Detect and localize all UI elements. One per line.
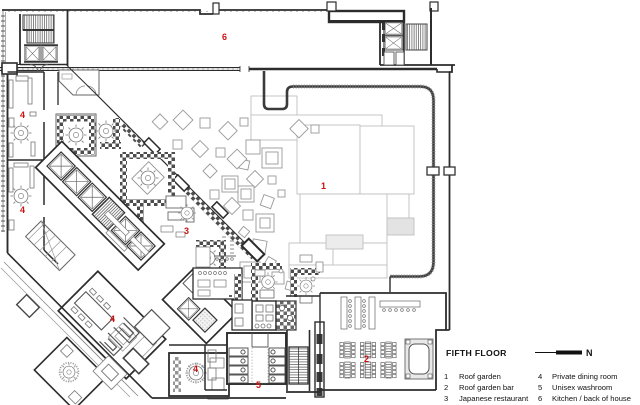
svg-text:1: 1: [321, 181, 326, 191]
svg-text:2: 2: [364, 354, 369, 364]
svg-text:6: 6: [538, 394, 542, 403]
svg-text:Private dining room: Private dining room: [552, 372, 617, 381]
svg-text:N: N: [586, 348, 593, 358]
svg-text:Japanese restaurant: Japanese restaurant: [459, 394, 529, 403]
svg-text:4: 4: [20, 205, 25, 215]
svg-text:Unisex washroom: Unisex washroom: [552, 383, 612, 392]
svg-text:4: 4: [538, 372, 542, 381]
svg-text:1: 1: [444, 372, 448, 381]
svg-text:FIFTH FLOOR: FIFTH FLOOR: [446, 348, 507, 358]
svg-text:3: 3: [184, 226, 189, 236]
svg-text:Kitchen / back of house: Kitchen / back of house: [552, 394, 631, 403]
svg-text:Roof garden: Roof garden: [459, 372, 501, 381]
svg-text:6: 6: [222, 32, 227, 42]
svg-text:4: 4: [193, 364, 198, 374]
svg-text:4: 4: [20, 110, 25, 120]
svg-text:5: 5: [256, 380, 261, 390]
svg-text:5: 5: [538, 383, 542, 392]
svg-text:4: 4: [110, 314, 115, 324]
svg-text:Roof garden bar: Roof garden bar: [459, 383, 514, 392]
svg-text:2: 2: [444, 383, 448, 392]
svg-text:3: 3: [444, 394, 448, 403]
